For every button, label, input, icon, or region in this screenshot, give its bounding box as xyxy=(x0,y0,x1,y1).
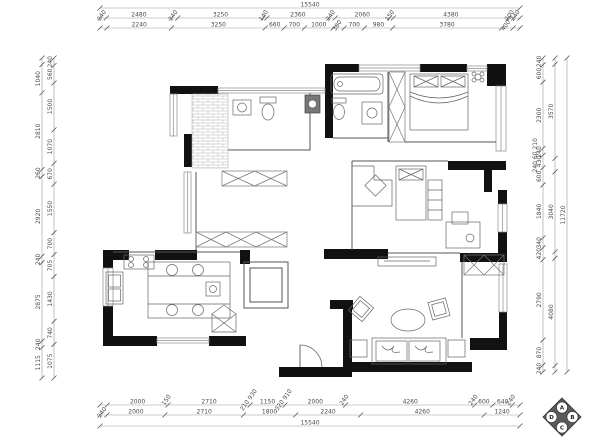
corridor-wardrobe-bottom xyxy=(196,232,287,247)
desk xyxy=(446,212,480,248)
dim-bottom-overall: 15540 xyxy=(98,420,523,429)
svg-text:740: 740 xyxy=(47,327,54,339)
svg-text:240: 240 xyxy=(47,56,54,68)
svg-text:870: 870 xyxy=(536,347,543,359)
svg-text:2920: 2920 xyxy=(35,209,42,224)
svg-text:11720: 11720 xyxy=(560,205,567,224)
terrace-brick-floor xyxy=(192,94,228,168)
dim-left-outer: 10402810260292024028752401115 xyxy=(35,56,45,381)
floor-plan-canvas: 15540 2402480240325014023602402060150438… xyxy=(0,0,608,446)
dim-top-row1: 2402480240325014023602402060150438020024… xyxy=(96,9,523,23)
dim-bottom-row2: 240200027101800224042601240 xyxy=(96,406,522,420)
kitchen-sink xyxy=(106,272,123,304)
svg-text:2875: 2875 xyxy=(35,294,42,309)
svg-text:660: 660 xyxy=(269,22,281,29)
svg-text:1550: 1550 xyxy=(47,201,54,216)
svg-text:670: 670 xyxy=(47,168,54,180)
dim-left-inner: 24056015001070670155070070514307401075 xyxy=(47,56,57,381)
svg-text:560: 560 xyxy=(47,68,54,80)
svg-text:3040: 3040 xyxy=(548,204,555,219)
washer xyxy=(305,95,320,113)
entry-door-arc xyxy=(300,345,322,367)
svg-text:600: 600 xyxy=(536,68,543,80)
vanity-1 xyxy=(233,100,251,115)
toilet-1 xyxy=(260,97,276,120)
svg-text:3250: 3250 xyxy=(211,22,226,29)
svg-text:980: 980 xyxy=(373,22,385,29)
interior-walls-layer xyxy=(113,72,496,338)
master-bed xyxy=(410,74,468,130)
svg-text:700: 700 xyxy=(289,22,301,29)
elevation-letter-b: B xyxy=(570,415,574,421)
toilet-2 xyxy=(332,98,346,120)
svg-text:4380: 4380 xyxy=(443,12,458,19)
svg-text:210 930: 210 930 xyxy=(239,388,259,412)
plant xyxy=(472,72,484,82)
svg-text:1075: 1075 xyxy=(47,353,54,368)
corridor-wardrobe-top xyxy=(222,171,287,186)
svg-text:2240: 2240 xyxy=(320,409,335,416)
dim-bottom-row1: 20002710115020004260600640150210 930320 … xyxy=(98,388,523,412)
svg-text:1430: 1430 xyxy=(47,291,54,306)
svg-text:140: 140 xyxy=(258,9,270,23)
chaise xyxy=(352,166,392,206)
svg-text:15540: 15540 xyxy=(300,420,319,427)
svg-text:4080: 4080 xyxy=(548,304,555,319)
svg-text:700: 700 xyxy=(47,238,54,250)
accent-chair-right xyxy=(428,298,450,320)
svg-text:2000: 2000 xyxy=(130,399,145,406)
dim-top-row2: 2240325066070010003807009803780400 xyxy=(98,19,523,33)
svg-text:2790: 2790 xyxy=(536,292,543,307)
vanity-2 xyxy=(362,102,382,124)
svg-text:1500: 1500 xyxy=(47,99,54,114)
svg-text:3250: 3250 xyxy=(213,12,228,19)
bed-2 xyxy=(396,166,442,220)
svg-text:1040: 1040 xyxy=(35,71,42,86)
master-closet xyxy=(389,72,405,142)
svg-text:2710: 2710 xyxy=(201,399,216,406)
fridge xyxy=(212,305,236,332)
svg-text:4260: 4260 xyxy=(415,409,430,416)
svg-text:2480: 2480 xyxy=(131,12,146,19)
svg-text:1240: 1240 xyxy=(494,409,509,416)
svg-text:260: 260 xyxy=(35,167,42,179)
coffee-table xyxy=(391,309,425,331)
svg-text:3780: 3780 xyxy=(439,22,454,29)
elevation-letter-a: A xyxy=(560,406,565,412)
svg-text:2060: 2060 xyxy=(355,12,370,19)
svg-text:1150: 1150 xyxy=(260,399,275,406)
svg-text:15540: 15540 xyxy=(300,2,319,9)
svg-text:700: 700 xyxy=(349,22,361,29)
svg-text:2300: 2300 xyxy=(536,107,543,122)
dim-top-overall: 15540 xyxy=(98,2,523,11)
svg-text:4260: 4260 xyxy=(403,399,418,406)
sofa xyxy=(350,338,465,364)
svg-text:2810: 2810 xyxy=(35,123,42,138)
svg-text:600: 600 xyxy=(478,399,490,406)
svg-text:150: 150 xyxy=(384,9,396,23)
elevation-letter-d: D xyxy=(549,415,554,421)
hatch-layer xyxy=(192,72,504,275)
svg-text:2240: 2240 xyxy=(132,22,147,29)
svg-text:1115: 1115 xyxy=(35,355,42,370)
svg-text:3570: 3570 xyxy=(548,104,555,119)
svg-text:1070: 1070 xyxy=(47,139,54,154)
svg-text:705: 705 xyxy=(47,260,54,272)
svg-text:1840: 1840 xyxy=(536,204,543,219)
svg-text:1000: 1000 xyxy=(311,22,326,29)
bathtub xyxy=(331,74,383,94)
svg-text:420: 420 xyxy=(536,248,543,260)
svg-text:1800: 1800 xyxy=(262,409,277,416)
svg-text:240 60 210: 240 60 210 xyxy=(532,138,539,173)
svg-text:2710: 2710 xyxy=(197,409,212,416)
elevation-letter-c: C xyxy=(560,426,564,432)
dim-right-overall: 11720 xyxy=(560,56,570,375)
elevation-marker: A B C D xyxy=(543,398,581,436)
dim-right-inner: 2406002300240430600184034042027908702402… xyxy=(532,56,546,375)
svg-text:2360: 2360 xyxy=(290,12,305,19)
furniture-layer xyxy=(106,72,484,367)
svg-text:2000: 2000 xyxy=(308,399,323,406)
dim-right-mid: 357030404080 xyxy=(548,56,558,375)
svg-text:2000: 2000 xyxy=(128,409,143,416)
floor-plan-sheet: 15540 2402480240325014023602402060150438… xyxy=(0,0,608,446)
